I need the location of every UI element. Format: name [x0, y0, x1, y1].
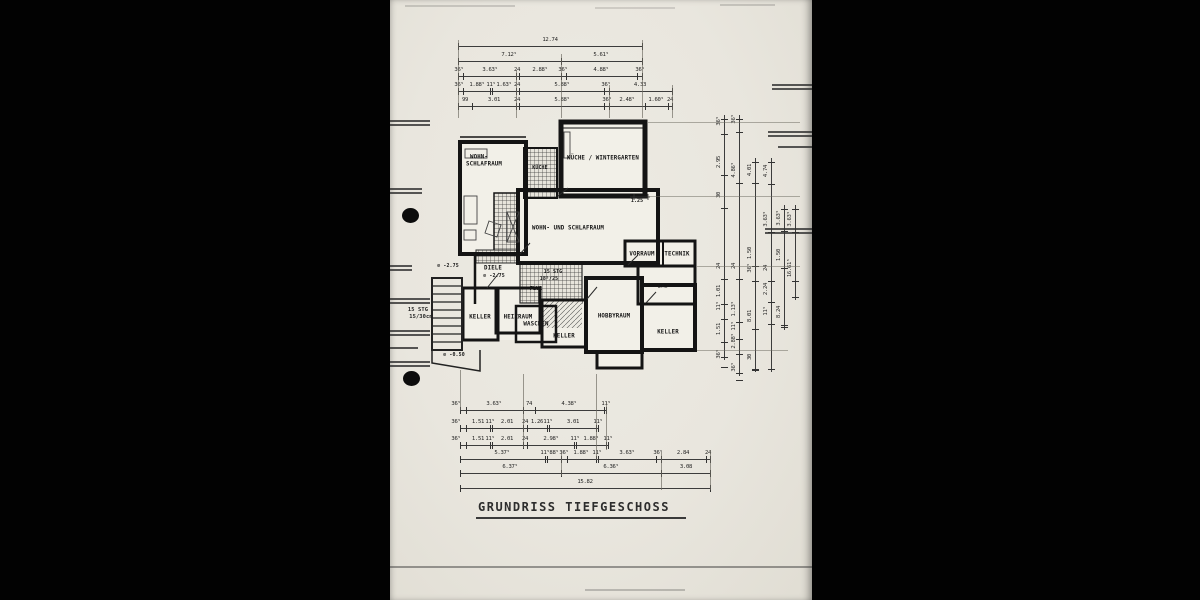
extension-line	[697, 350, 788, 351]
dimension-label: 16.61⁵	[787, 259, 793, 277]
dimension-label: 36⁵	[731, 362, 737, 371]
dimension-label: 24	[514, 97, 520, 103]
dimension-line	[460, 410, 606, 411]
dimension-label: 4.33	[634, 82, 646, 88]
dimension-tick	[598, 456, 599, 463]
dimension-tick	[527, 425, 528, 432]
dimension-tick	[721, 208, 728, 209]
dimension-tick	[752, 183, 759, 184]
paper-edge-mark	[772, 84, 812, 86]
extension-line	[648, 122, 800, 123]
dimension-tick	[736, 380, 743, 381]
dimension-tick	[752, 370, 759, 371]
paper-edge-mark	[390, 302, 430, 304]
drawing-title: GRUNDRISS TIEFGESCHOSS	[476, 500, 686, 519]
dimension-tick	[460, 470, 461, 477]
dimension-label: 88⁵	[549, 450, 558, 456]
room-label: DIELE	[484, 265, 502, 271]
dimension-tick	[492, 442, 493, 449]
hole-punch-bottom	[403, 371, 420, 386]
dimension-label: 30	[716, 192, 722, 198]
dimension-label: 8.24	[776, 306, 782, 318]
dimension-tick	[545, 456, 546, 463]
dimension-tick	[604, 103, 605, 110]
dimension-tick	[460, 425, 461, 432]
paper-edge-mark	[768, 131, 812, 133]
extension-line	[516, 70, 517, 118]
room-label: HOBBYRAUM	[598, 313, 630, 319]
room-label: KÜCHE / WINTERGARTEN	[567, 155, 639, 161]
dimension-tick	[736, 183, 743, 184]
paper-edge-mark	[595, 7, 675, 9]
dimension-tick	[752, 329, 759, 330]
room-label: FLUR	[530, 286, 542, 292]
dimension-label: 3.63⁵	[763, 211, 769, 226]
dimension-tick	[604, 407, 605, 414]
room-label: BAD	[658, 283, 669, 289]
paper-edge-mark	[778, 146, 812, 148]
extension-line	[642, 40, 643, 118]
dimension-tick	[781, 325, 788, 326]
dimension-label: 4.74	[763, 165, 769, 177]
paper-edge-mark	[390, 347, 418, 349]
dimension-label: 11⁵	[763, 306, 769, 315]
scanned-drawing-page: 12.747.12⁵5.61⁵36⁵3.63⁵242.88⁵36⁵4.88⁵36…	[0, 0, 1200, 600]
dimension-label: 3.63⁵	[776, 210, 782, 225]
dimension-tick	[721, 367, 728, 368]
room-label: WOHN- UND SCHLAFRAUM	[532, 225, 604, 231]
dimension-line	[458, 61, 642, 62]
dimension-tick	[490, 425, 491, 432]
dimension-label: 1.50	[747, 247, 753, 259]
dimension-tick	[721, 342, 728, 343]
dimension-tick	[604, 88, 605, 95]
dimension-line	[771, 158, 772, 372]
dimension-label: 11⁵	[485, 419, 494, 425]
dimension-label: 36⁵	[454, 67, 463, 73]
paper-edge-mark	[390, 265, 412, 267]
room-label: KELLER	[657, 329, 679, 335]
dimension-label: 1.60⁵	[648, 97, 663, 103]
dimension-label: 1.88⁵	[469, 82, 484, 88]
dimension-label: 4.38⁵	[561, 401, 576, 407]
dimension-label: 3.01	[567, 419, 579, 425]
extension-line	[710, 450, 711, 490]
room-label: WOHN-	[470, 154, 488, 160]
dimension-line	[795, 205, 796, 300]
dimension-label: 1.63⁵	[496, 82, 511, 88]
dimension-tick	[566, 73, 567, 80]
dimension-label: 2.95	[716, 156, 722, 168]
paper-edge-mark	[390, 365, 430, 367]
dimension-line	[460, 488, 710, 489]
dimension-tick	[549, 425, 550, 432]
dimension-label: 2.48⁵	[619, 97, 634, 103]
dimension-line	[458, 106, 672, 107]
extension-line	[661, 452, 662, 490]
dimension-tick	[466, 442, 467, 449]
dimension-label: 36⁵	[558, 67, 567, 73]
dimension-tick	[792, 281, 799, 282]
paper-edge-mark	[765, 228, 812, 230]
paper-edge-mark	[772, 88, 812, 90]
extension-line	[561, 452, 562, 476]
dimension-tick	[463, 73, 464, 80]
extension-line	[561, 54, 562, 118]
dimension-label: 5.88⁵	[554, 82, 569, 88]
dimension-tick	[656, 456, 657, 463]
dimension-label: 11⁵	[485, 436, 494, 442]
dimension-label: 1.13⁵	[731, 301, 737, 316]
dimension-label: 1.88⁵	[573, 450, 588, 456]
dimension-line	[458, 76, 642, 77]
dimension-line	[460, 459, 710, 460]
room-label: SCHLAFRAUM	[466, 161, 502, 167]
dimension-label: 11⁵	[543, 419, 552, 425]
dimension-tick	[527, 442, 528, 449]
extension-line	[606, 402, 607, 450]
dimension-tick	[768, 162, 775, 163]
dimension-tick	[752, 281, 759, 282]
dimension-label: 5.88⁵	[554, 97, 569, 103]
hole-punch-top	[402, 208, 419, 223]
dimension-label: 12.74	[542, 37, 557, 43]
paper-edge-mark	[390, 120, 430, 122]
dimension-label: 2.01	[501, 436, 513, 442]
dimension-tick	[768, 184, 775, 185]
level-marker: ⊘ -2.75	[483, 273, 505, 279]
dimension-label: 6.37⁵	[502, 464, 517, 470]
dimension-tick	[752, 369, 759, 370]
level-marker: ⊘ -2.75	[437, 263, 459, 269]
dimension-label: 1.26	[531, 419, 543, 425]
dimension-label: 24	[514, 82, 520, 88]
dimension-label: 30	[747, 354, 753, 360]
room-label: KÜCHE	[532, 165, 547, 171]
dimension-tick	[460, 456, 461, 463]
dimension-label: 2.24	[763, 283, 769, 295]
dimension-label: 8.01	[747, 310, 753, 322]
dimension-tick	[781, 327, 788, 328]
dimension-tick	[472, 103, 473, 110]
room-label: 1.25	[631, 198, 643, 204]
dimension-label: 11⁵	[570, 436, 579, 442]
paper-edge-mark	[720, 4, 775, 6]
dimension-line	[458, 46, 642, 47]
dimension-tick	[706, 456, 707, 463]
paper-edge-mark	[390, 566, 812, 568]
dimension-label: 2.88⁵	[731, 333, 737, 348]
room-label: 15 STG	[408, 307, 428, 313]
extension-line	[672, 85, 673, 118]
dimension-label: 3.63⁵	[482, 67, 497, 73]
dimension-label: 2.98⁵	[543, 436, 558, 442]
dimension-tick	[598, 425, 599, 432]
dimension-tick	[519, 88, 520, 95]
dimension-label: 36⁵	[454, 82, 463, 88]
dimension-line	[755, 158, 756, 372]
dimension-label: 5.37⁵	[494, 450, 509, 456]
dimension-tick	[460, 442, 461, 449]
dimension-line	[739, 115, 740, 376]
dimension-tick	[736, 373, 743, 374]
dimension-tick	[460, 485, 461, 492]
level-marker: ⊘ -0.50	[443, 352, 465, 358]
room-label: 15 STG	[544, 269, 563, 275]
dimension-tick	[466, 425, 467, 432]
dimension-tick	[721, 175, 728, 176]
paper-edge-mark	[390, 124, 430, 126]
dimension-label: 3.63⁵	[787, 211, 793, 226]
dimension-label: 2.88⁵	[532, 67, 547, 73]
dimension-label: 36⁵	[747, 263, 753, 272]
paper-edge-mark	[390, 298, 430, 300]
dimension-label: 4.01	[747, 164, 753, 176]
room-label: WASCHEN	[523, 321, 548, 327]
paper-edge-mark	[585, 589, 685, 591]
extension-line	[596, 374, 597, 460]
dimension-label: 11⁵	[716, 301, 722, 310]
paper-edge-mark	[390, 361, 430, 363]
dimension-tick	[721, 279, 728, 280]
dimension-tick	[492, 88, 493, 95]
dimension-tick	[574, 442, 575, 449]
extension-line	[523, 374, 524, 448]
dimension-tick	[645, 103, 646, 110]
dimension-label: 24	[514, 67, 520, 73]
dimension-tick	[792, 297, 799, 298]
room-label: VORRAUM	[629, 251, 654, 257]
extension-line	[458, 40, 459, 118]
extension-line	[697, 266, 800, 267]
dimension-label: 11⁵	[603, 436, 612, 442]
dimension-tick	[792, 209, 799, 210]
dimension-tick	[535, 407, 536, 414]
dimension-label: 5.61⁵	[593, 52, 608, 58]
room-label: KELLER	[469, 314, 491, 320]
dimension-label: 74	[526, 401, 532, 407]
dimension-label: 11⁵	[592, 450, 601, 456]
dimension-tick	[768, 324, 775, 325]
dimension-label: 11⁵	[486, 82, 495, 88]
room-label: 18⁵/25	[540, 276, 559, 282]
dimension-label: 36⁵	[451, 419, 460, 425]
dimension-tick	[721, 134, 728, 135]
dimension-tick	[576, 442, 577, 449]
dimension-label: 36⁵	[602, 97, 611, 103]
dimension-tick	[736, 132, 743, 133]
dimension-tick	[519, 103, 520, 110]
dimension-label: 3.01	[488, 97, 500, 103]
dimension-tick	[547, 425, 548, 432]
dimension-label: 11⁵	[731, 321, 737, 330]
extension-line	[460, 370, 461, 410]
dimension-tick	[736, 354, 743, 355]
paper-edge-mark	[390, 192, 422, 194]
dimension-tick	[547, 456, 548, 463]
dimension-label: 3.63⁵	[486, 401, 501, 407]
dimension-label: 1.50	[776, 249, 782, 261]
dimension-tick	[567, 456, 568, 463]
dimension-label: 1.01	[716, 285, 722, 297]
dimension-line	[460, 445, 608, 446]
dimension-label: 7.12⁵	[501, 52, 516, 58]
dimension-line	[460, 473, 710, 474]
dimension-label: 15.82	[577, 479, 592, 485]
dimension-label: 1.51	[472, 419, 484, 425]
dimension-line	[460, 428, 598, 429]
dimension-tick	[490, 442, 491, 449]
dimension-tick	[466, 407, 467, 414]
dimension-label: 1.51	[716, 323, 722, 335]
paper-edge-mark	[390, 269, 412, 271]
dimension-tick	[492, 425, 493, 432]
dimension-label: 11⁵	[540, 450, 549, 456]
dimension-label: 6.36⁵	[603, 464, 618, 470]
dimension-tick	[490, 88, 491, 95]
dimension-tick	[736, 279, 743, 280]
dimension-tick	[768, 369, 775, 370]
dimension-label: 3.08	[680, 464, 692, 470]
dimension-label: 36⁵	[716, 116, 722, 125]
dimension-tick	[721, 319, 728, 320]
dimension-label: 4.86⁵	[731, 162, 737, 177]
dimension-tick	[668, 103, 669, 110]
extension-line	[609, 85, 610, 118]
dimension-label: 1.51	[472, 436, 484, 442]
room-label: HEIZRAUM	[504, 314, 533, 320]
dimension-tick	[519, 73, 520, 80]
paper-edge-mark	[768, 135, 812, 137]
room-label: TECHNIK	[664, 251, 689, 257]
paper-edge-mark	[405, 5, 515, 7]
dimension-label: 3.63⁵	[619, 450, 634, 456]
paper-sheet: 12.747.12⁵5.61⁵36⁵3.63⁵242.88⁵36⁵4.88⁵36…	[390, 0, 812, 600]
paper-edge-mark	[765, 232, 812, 234]
extension-line	[648, 196, 800, 197]
paper-edge-mark	[390, 330, 430, 332]
room-label: KELLER	[553, 333, 575, 339]
dimension-label: 4.88⁵	[593, 67, 608, 73]
dimension-tick	[463, 88, 464, 95]
dimension-label: 36⁵	[451, 436, 460, 442]
dimension-tick	[768, 302, 775, 303]
dimension-label: 11⁵	[593, 419, 602, 425]
paper-edge-mark	[390, 188, 422, 190]
dimension-tick	[608, 442, 609, 449]
dimension-line	[724, 115, 725, 360]
room-label: 15/30cm	[409, 314, 433, 320]
dimension-label: 99	[462, 97, 468, 103]
dimension-tick	[637, 73, 638, 80]
dimension-label: 2.84	[677, 450, 689, 456]
paper-edge-mark	[390, 334, 430, 336]
dimension-label: 2.01	[501, 419, 513, 425]
dimension-label: 36⁵	[635, 67, 644, 73]
